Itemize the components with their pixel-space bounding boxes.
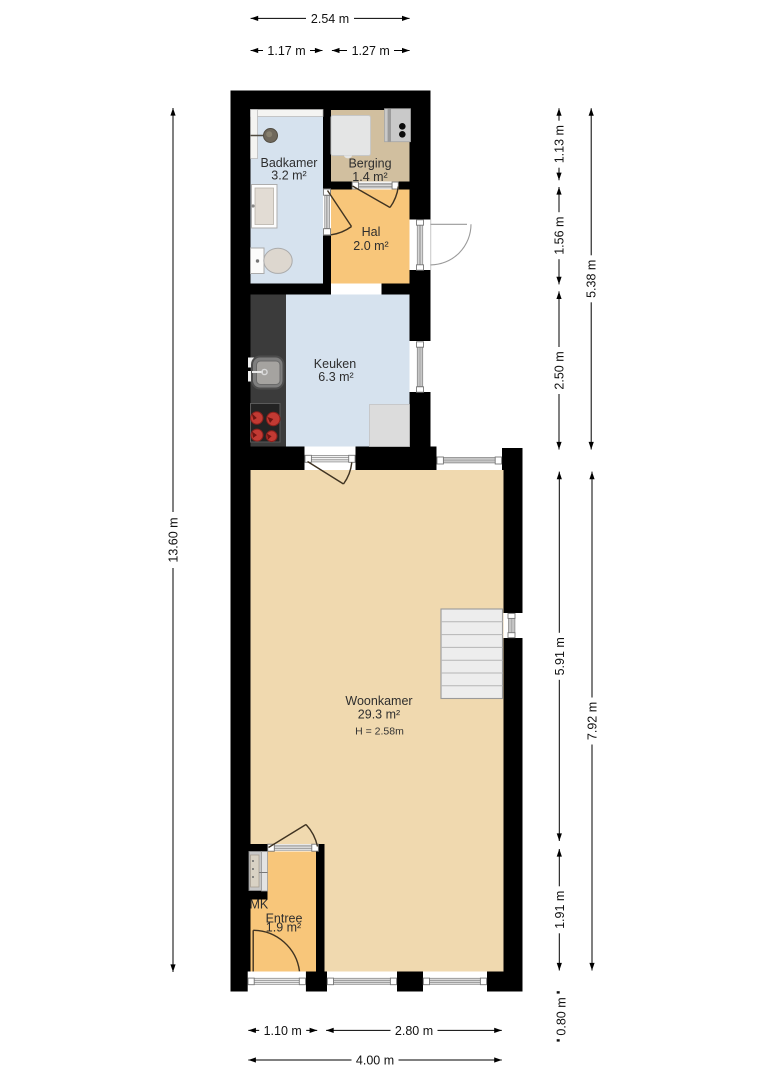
svg-text:2.50 m: 2.50 m <box>553 351 567 389</box>
svg-text:H = 2.58m: H = 2.58m <box>355 726 404 738</box>
svg-text:5.38 m: 5.38 m <box>585 260 599 298</box>
svg-text:0.80 m: 0.80 m <box>555 997 569 1035</box>
svg-text:13.60 m: 13.60 m <box>167 517 181 562</box>
svg-text:1.9 m²: 1.9 m² <box>266 921 301 935</box>
svg-text:4.00 m: 4.00 m <box>356 1054 394 1068</box>
svg-text:Berging: Berging <box>348 157 391 171</box>
svg-text:1.17 m: 1.17 m <box>267 44 305 58</box>
svg-text:2.54 m: 2.54 m <box>311 12 349 26</box>
svg-text:29.3 m²: 29.3 m² <box>358 708 400 722</box>
svg-text:1.13 m: 1.13 m <box>553 125 567 163</box>
svg-text:7.92 m: 7.92 m <box>586 702 600 740</box>
svg-text:1.4 m²: 1.4 m² <box>352 170 387 184</box>
svg-text:Hal: Hal <box>362 225 381 239</box>
svg-text:1.56 m: 1.56 m <box>553 217 567 255</box>
svg-text:2.80 m: 2.80 m <box>395 1024 433 1038</box>
svg-text:1.91 m: 1.91 m <box>553 891 567 929</box>
svg-text:6.3 m²: 6.3 m² <box>318 370 353 384</box>
svg-text:3.2 m²: 3.2 m² <box>271 169 306 183</box>
svg-text:1.10 m: 1.10 m <box>264 1024 302 1038</box>
svg-text:2.0 m²: 2.0 m² <box>353 239 388 253</box>
svg-text:1.27 m: 1.27 m <box>352 44 390 58</box>
svg-text:MK: MK <box>250 898 269 912</box>
svg-text:Woonkamer: Woonkamer <box>345 694 412 708</box>
svg-text:5.91 m: 5.91 m <box>553 637 567 675</box>
svg-text:Keuken: Keuken <box>314 357 356 371</box>
